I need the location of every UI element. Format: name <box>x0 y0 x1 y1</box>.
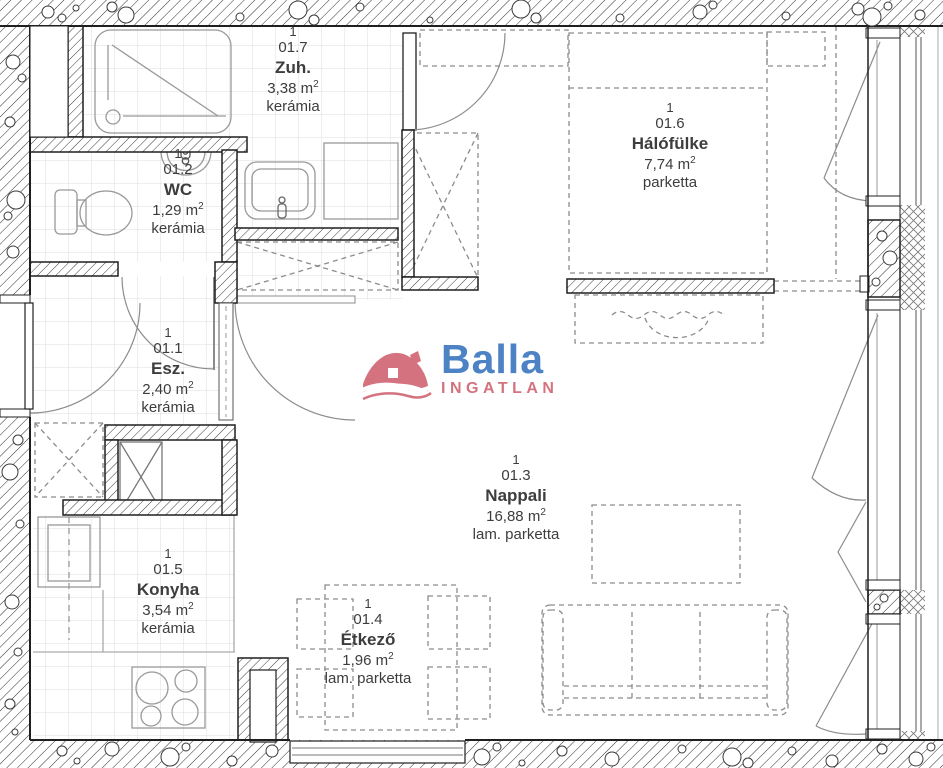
room-area: 3,54 m2 <box>142 601 193 620</box>
room-code: 01.7 <box>278 39 307 57</box>
half-wall <box>567 279 774 293</box>
insulation <box>900 590 925 614</box>
wall <box>68 26 83 137</box>
wall <box>30 137 247 152</box>
room-floor: lam. parketta <box>325 670 412 688</box>
wall <box>235 228 398 240</box>
insulation <box>900 205 925 310</box>
room-label-konyha: 1 01.5 Konyha 3,54 m2 kerámia <box>137 546 199 637</box>
room-count: 1 <box>289 24 296 39</box>
room-name: Zuh. <box>275 58 311 78</box>
room-floor: lam. parketta <box>473 526 560 544</box>
room-name: Esz. <box>151 359 185 379</box>
room-name: Nappali <box>485 486 546 506</box>
room-code: 01.3 <box>501 467 530 485</box>
room-count: 1 <box>364 596 371 611</box>
room-area: 16,88 m2 <box>486 507 546 526</box>
room-floor: kerámia <box>266 98 319 116</box>
insulation <box>900 731 925 740</box>
room-label-zuh: 1 01.7 Zuh. 3,38 m2 kerámia <box>266 24 319 115</box>
environment-bottom <box>0 740 943 768</box>
room-area: 2,40 m2 <box>142 380 193 399</box>
room-label-halofulke: 1 01.6 Hálófülke 7,74 m2 parketta <box>632 100 709 191</box>
wall <box>222 150 237 262</box>
room-area: 1,96 m2 <box>342 651 393 670</box>
wall <box>215 262 237 303</box>
balla-logo: Balla INGATLAN <box>362 340 558 406</box>
room-label-nappali: 1 01.3 Nappali 16,88 m2 lam. parketta <box>473 452 560 543</box>
room-floor: kerámia <box>141 399 194 417</box>
environment-top <box>0 0 943 26</box>
floor-plan: 1 01.7 Zuh. 3,38 m2 kerámia 1 01.2 WC 1,… <box>0 0 943 768</box>
entry-door-leaf <box>25 303 33 409</box>
room-label-esz: 1 01.1 Esz. 2,40 m2 kerámia <box>141 325 194 416</box>
esz-right-wall <box>219 303 233 420</box>
wall <box>402 130 414 277</box>
exterior-wall-strip <box>30 26 68 137</box>
room-count: 1 <box>164 325 171 340</box>
chimney-pier <box>238 658 288 742</box>
room-code: 01.5 <box>153 561 182 579</box>
wall <box>222 440 237 515</box>
room-area: 7,74 m2 <box>644 155 695 174</box>
room-code: 01.4 <box>353 611 382 629</box>
wall <box>105 425 235 440</box>
room-code: 01.6 <box>655 115 684 133</box>
wall <box>30 262 118 276</box>
logo-subtitle: INGATLAN <box>441 380 558 398</box>
wall <box>402 277 478 290</box>
room-floor: kerámia <box>141 620 194 638</box>
room-area: 3,38 m2 <box>267 79 318 98</box>
room-name: Konyha <box>137 580 199 600</box>
room-floor: kerámia <box>151 220 204 238</box>
room-name: Étkező <box>341 630 396 650</box>
logo-brand: Balla <box>441 340 558 379</box>
room-floor: parketta <box>643 174 697 192</box>
insulation <box>900 26 925 37</box>
room-count: 1 <box>174 146 181 161</box>
room-code: 01.2 <box>163 161 192 179</box>
bottom-window <box>290 741 465 763</box>
room-label-wc: 1 01.2 WC 1,29 m2 kerámia <box>151 146 204 237</box>
room-count: 1 <box>512 452 519 467</box>
house-icon <box>362 342 432 406</box>
room-count: 1 <box>164 546 171 561</box>
room-area: 1,29 m2 <box>152 201 203 220</box>
room-label-etkezo: 1 01.4 Étkező 1,96 m2 lam. parketta <box>325 596 412 687</box>
door-sill <box>0 295 30 303</box>
room-code: 01.1 <box>153 340 182 358</box>
wall <box>63 500 235 515</box>
room-count: 1 <box>666 100 673 115</box>
room-name: WC <box>164 180 192 200</box>
door-sill <box>0 409 30 417</box>
room-name: Hálófülke <box>632 134 709 154</box>
